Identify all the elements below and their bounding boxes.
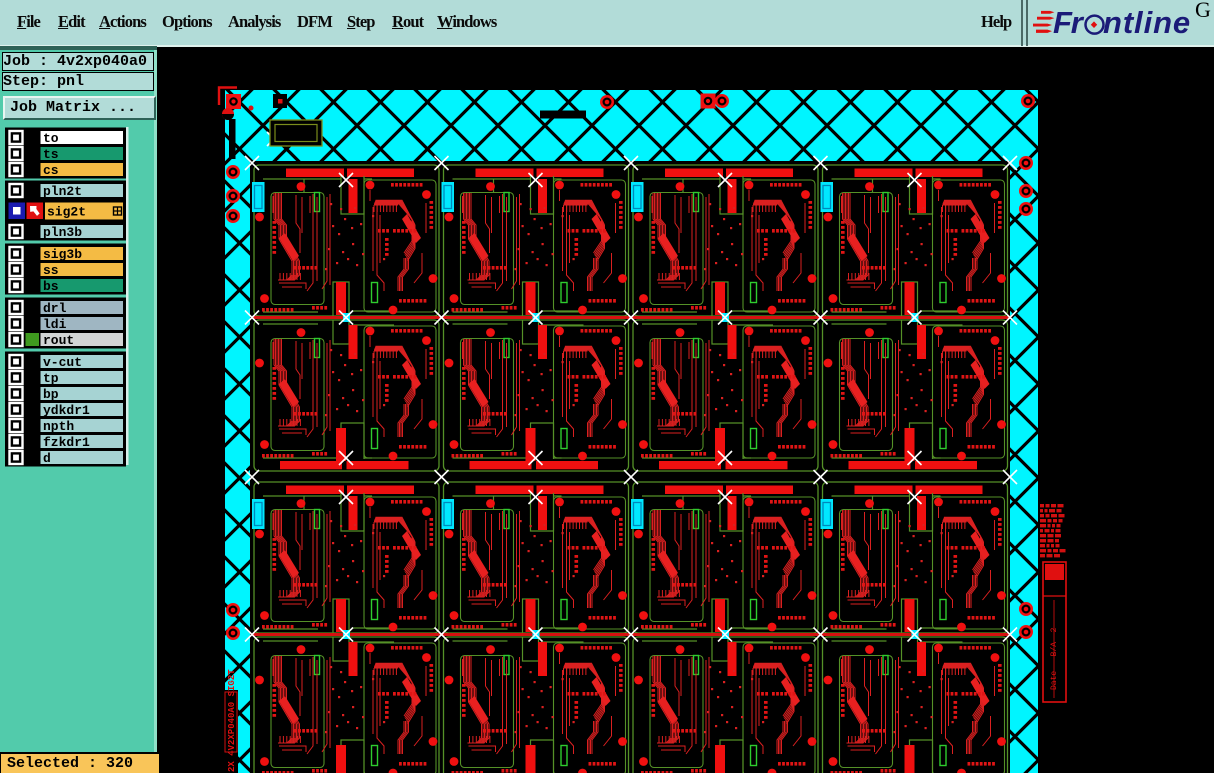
svg-text:rout: rout [43, 333, 74, 348]
svg-text:npth: npth [43, 419, 74, 434]
svg-text:d: d [43, 451, 51, 466]
svg-text:v-cut: v-cut [43, 355, 82, 370]
svg-text:fzkdr1: fzkdr1 [43, 435, 90, 450]
svg-text:ydkdr1: ydkdr1 [43, 403, 90, 418]
svg-text:drl: drl [43, 301, 67, 316]
svg-text:pln2t: pln2t [43, 184, 82, 199]
svg-text:cs: cs [43, 163, 59, 178]
svg-text:ntline: ntline [1103, 5, 1191, 40]
svg-text:pln3b: pln3b [43, 225, 82, 240]
svg-text:ts: ts [43, 147, 59, 162]
svg-text:bs: bs [43, 279, 59, 294]
svg-text:sig3b: sig3b [43, 247, 82, 262]
svg-text:Fr: Fr [1053, 5, 1085, 40]
svg-text:to: to [43, 131, 59, 146]
svg-text:Date B/A 2: Date B/A 2 [1050, 627, 1059, 690]
svg-text:bp: bp [43, 387, 59, 402]
svg-text:sig2t: sig2t [47, 205, 86, 220]
svg-text:ss: ss [43, 263, 59, 278]
svg-text:tp: tp [43, 371, 59, 386]
svg-text:2X 4V2XP040A0 SIG2T: 2X 4V2XP040A0 SIG2T [227, 669, 237, 772]
svg-text:ldi: ldi [43, 317, 67, 332]
